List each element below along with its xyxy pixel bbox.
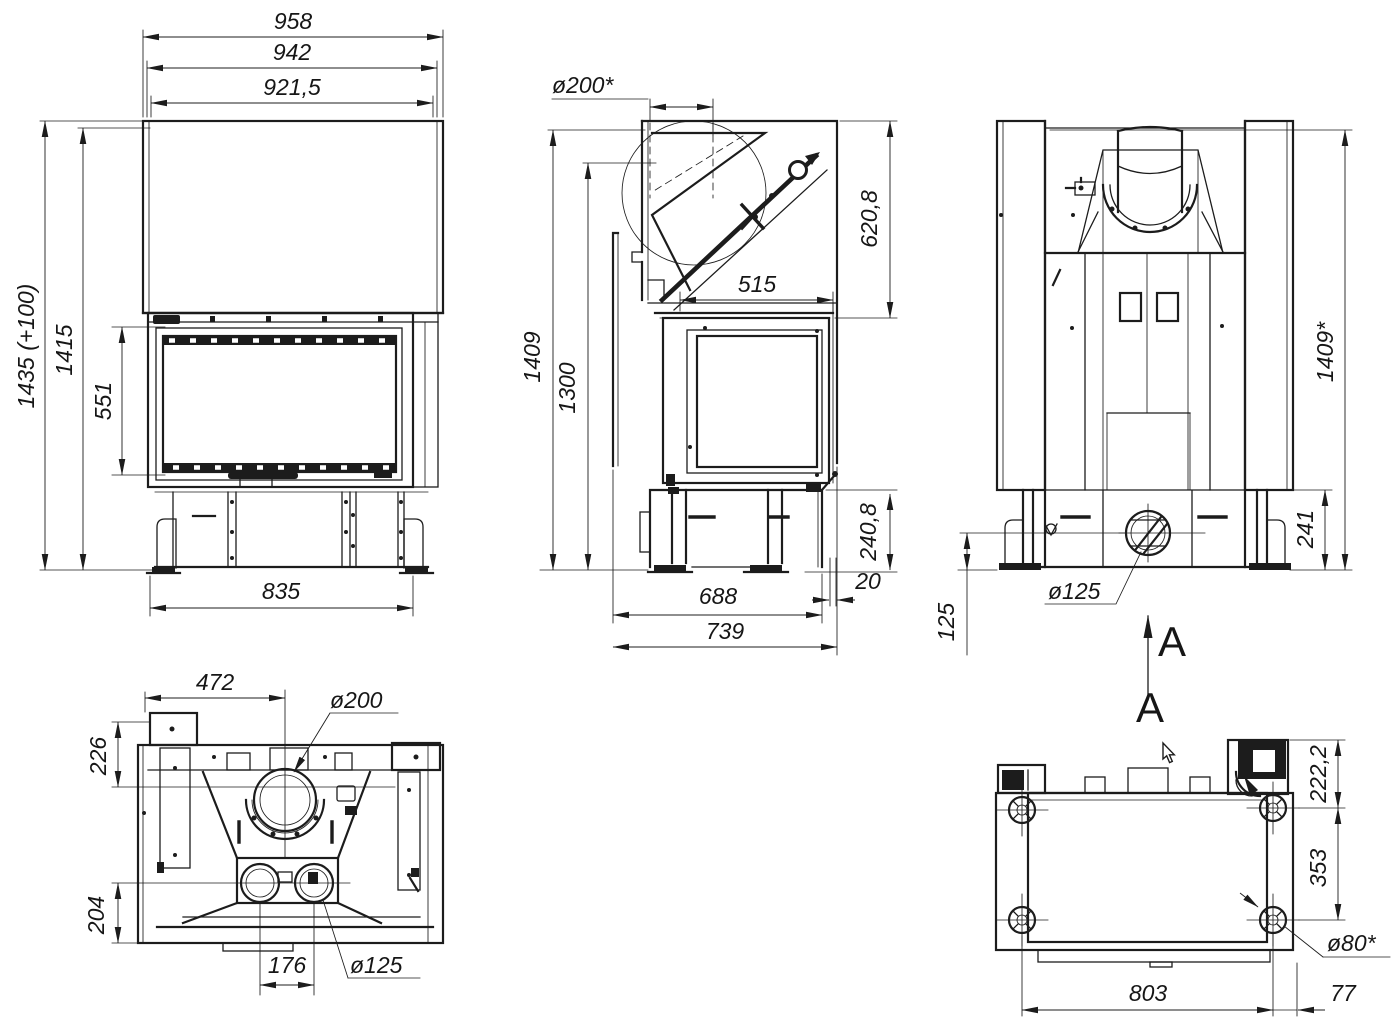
- front-legs: [157, 519, 423, 568]
- dim-front-mid-width: 942: [273, 39, 312, 65]
- flue-mount-bracket: [1078, 150, 1223, 253]
- dim-side-flue-diameter: ø200*: [552, 72, 614, 98]
- dim-side-base-depth: 688: [699, 583, 738, 609]
- dim-top-front-offset: 226: [85, 737, 111, 777]
- dim-side-hood-height: 620,8: [856, 190, 882, 248]
- dim-back-outlet-height: 125: [933, 603, 959, 642]
- door-handle: [228, 472, 298, 479]
- dim-bottom-top-offset: 222,2: [1305, 745, 1331, 804]
- dim-top-duct-spacing: 176: [268, 952, 307, 978]
- bottom-body: [996, 793, 1293, 950]
- dim-back-outlet-diameter: ø125: [1048, 578, 1101, 604]
- back-view: 1409* 241 125 ø125 A A: [933, 121, 1352, 731]
- dim-front-body-height: 1415: [51, 324, 77, 375]
- dim-side-rear-gap: 20: [854, 568, 881, 594]
- front-glass: [163, 336, 396, 472]
- dim-front-total-height: 1435 (+100): [13, 284, 39, 409]
- dim-top-rear-offset: 204: [83, 896, 109, 935]
- dim-bottom-foot-depth-spacing: 353: [1305, 849, 1331, 888]
- dim-side-total-height: 1409: [519, 331, 545, 382]
- dim-front-glass-height: 551: [90, 382, 116, 420]
- dim-front-overall-width: 958: [274, 8, 313, 34]
- convection-vent: [1157, 293, 1178, 321]
- dim-back-base-height: 241: [1292, 510, 1318, 549]
- feet: [996, 782, 1299, 946]
- front-hood: [143, 121, 443, 313]
- damper-swing-arc: [622, 121, 766, 265]
- dim-side-base-height: 240,8: [855, 503, 881, 562]
- dim-top-duct-diameter: ø125: [350, 952, 403, 978]
- fireplace-dimension-drawing: 958 942 921,5 1435 (+100) 1415 551 835: [0, 0, 1392, 1031]
- dim-side-glass-width: 515: [738, 271, 777, 297]
- convection-vent: [1120, 293, 1141, 321]
- section-label-a: A: [1158, 618, 1186, 665]
- side-glass-frame: [663, 318, 829, 483]
- top-body: [138, 745, 443, 943]
- dim-top-flue-diameter: ø200: [330, 687, 383, 713]
- dim-back-total-height: 1409*: [1312, 321, 1338, 382]
- dim-bottom-foot-width-spacing: 803: [1129, 980, 1168, 1006]
- mouse-cursor: [1163, 743, 1174, 763]
- side-view: ø200* 620,8 515 1409 1300 240,8 20 688 7…: [519, 72, 897, 655]
- section-label-a: A: [1136, 684, 1164, 731]
- front-view: 958 942 921,5 1435 (+100) 1415 551 835: [13, 8, 443, 616]
- dim-bottom-foot-diameter: ø80*: [1327, 930, 1377, 956]
- top-view: 472 ø200 226 204 176 ø125: [83, 669, 443, 995]
- dim-side-total-depth: 739: [706, 618, 745, 644]
- dim-front-base-width: 835: [262, 578, 301, 604]
- damper-pivot: [790, 162, 807, 179]
- door-latch: [153, 315, 180, 324]
- dim-front-inner-width: 921,5: [263, 74, 321, 100]
- bottom-view: 222,2 353 ø80* 803 77: [996, 740, 1390, 1016]
- dim-top-width: 472: [196, 669, 235, 695]
- side-legs: [672, 490, 782, 563]
- dim-side-front-height: 1300: [554, 362, 580, 413]
- side-glass: [697, 336, 817, 467]
- dim-bottom-side-offset: 77: [1330, 980, 1357, 1006]
